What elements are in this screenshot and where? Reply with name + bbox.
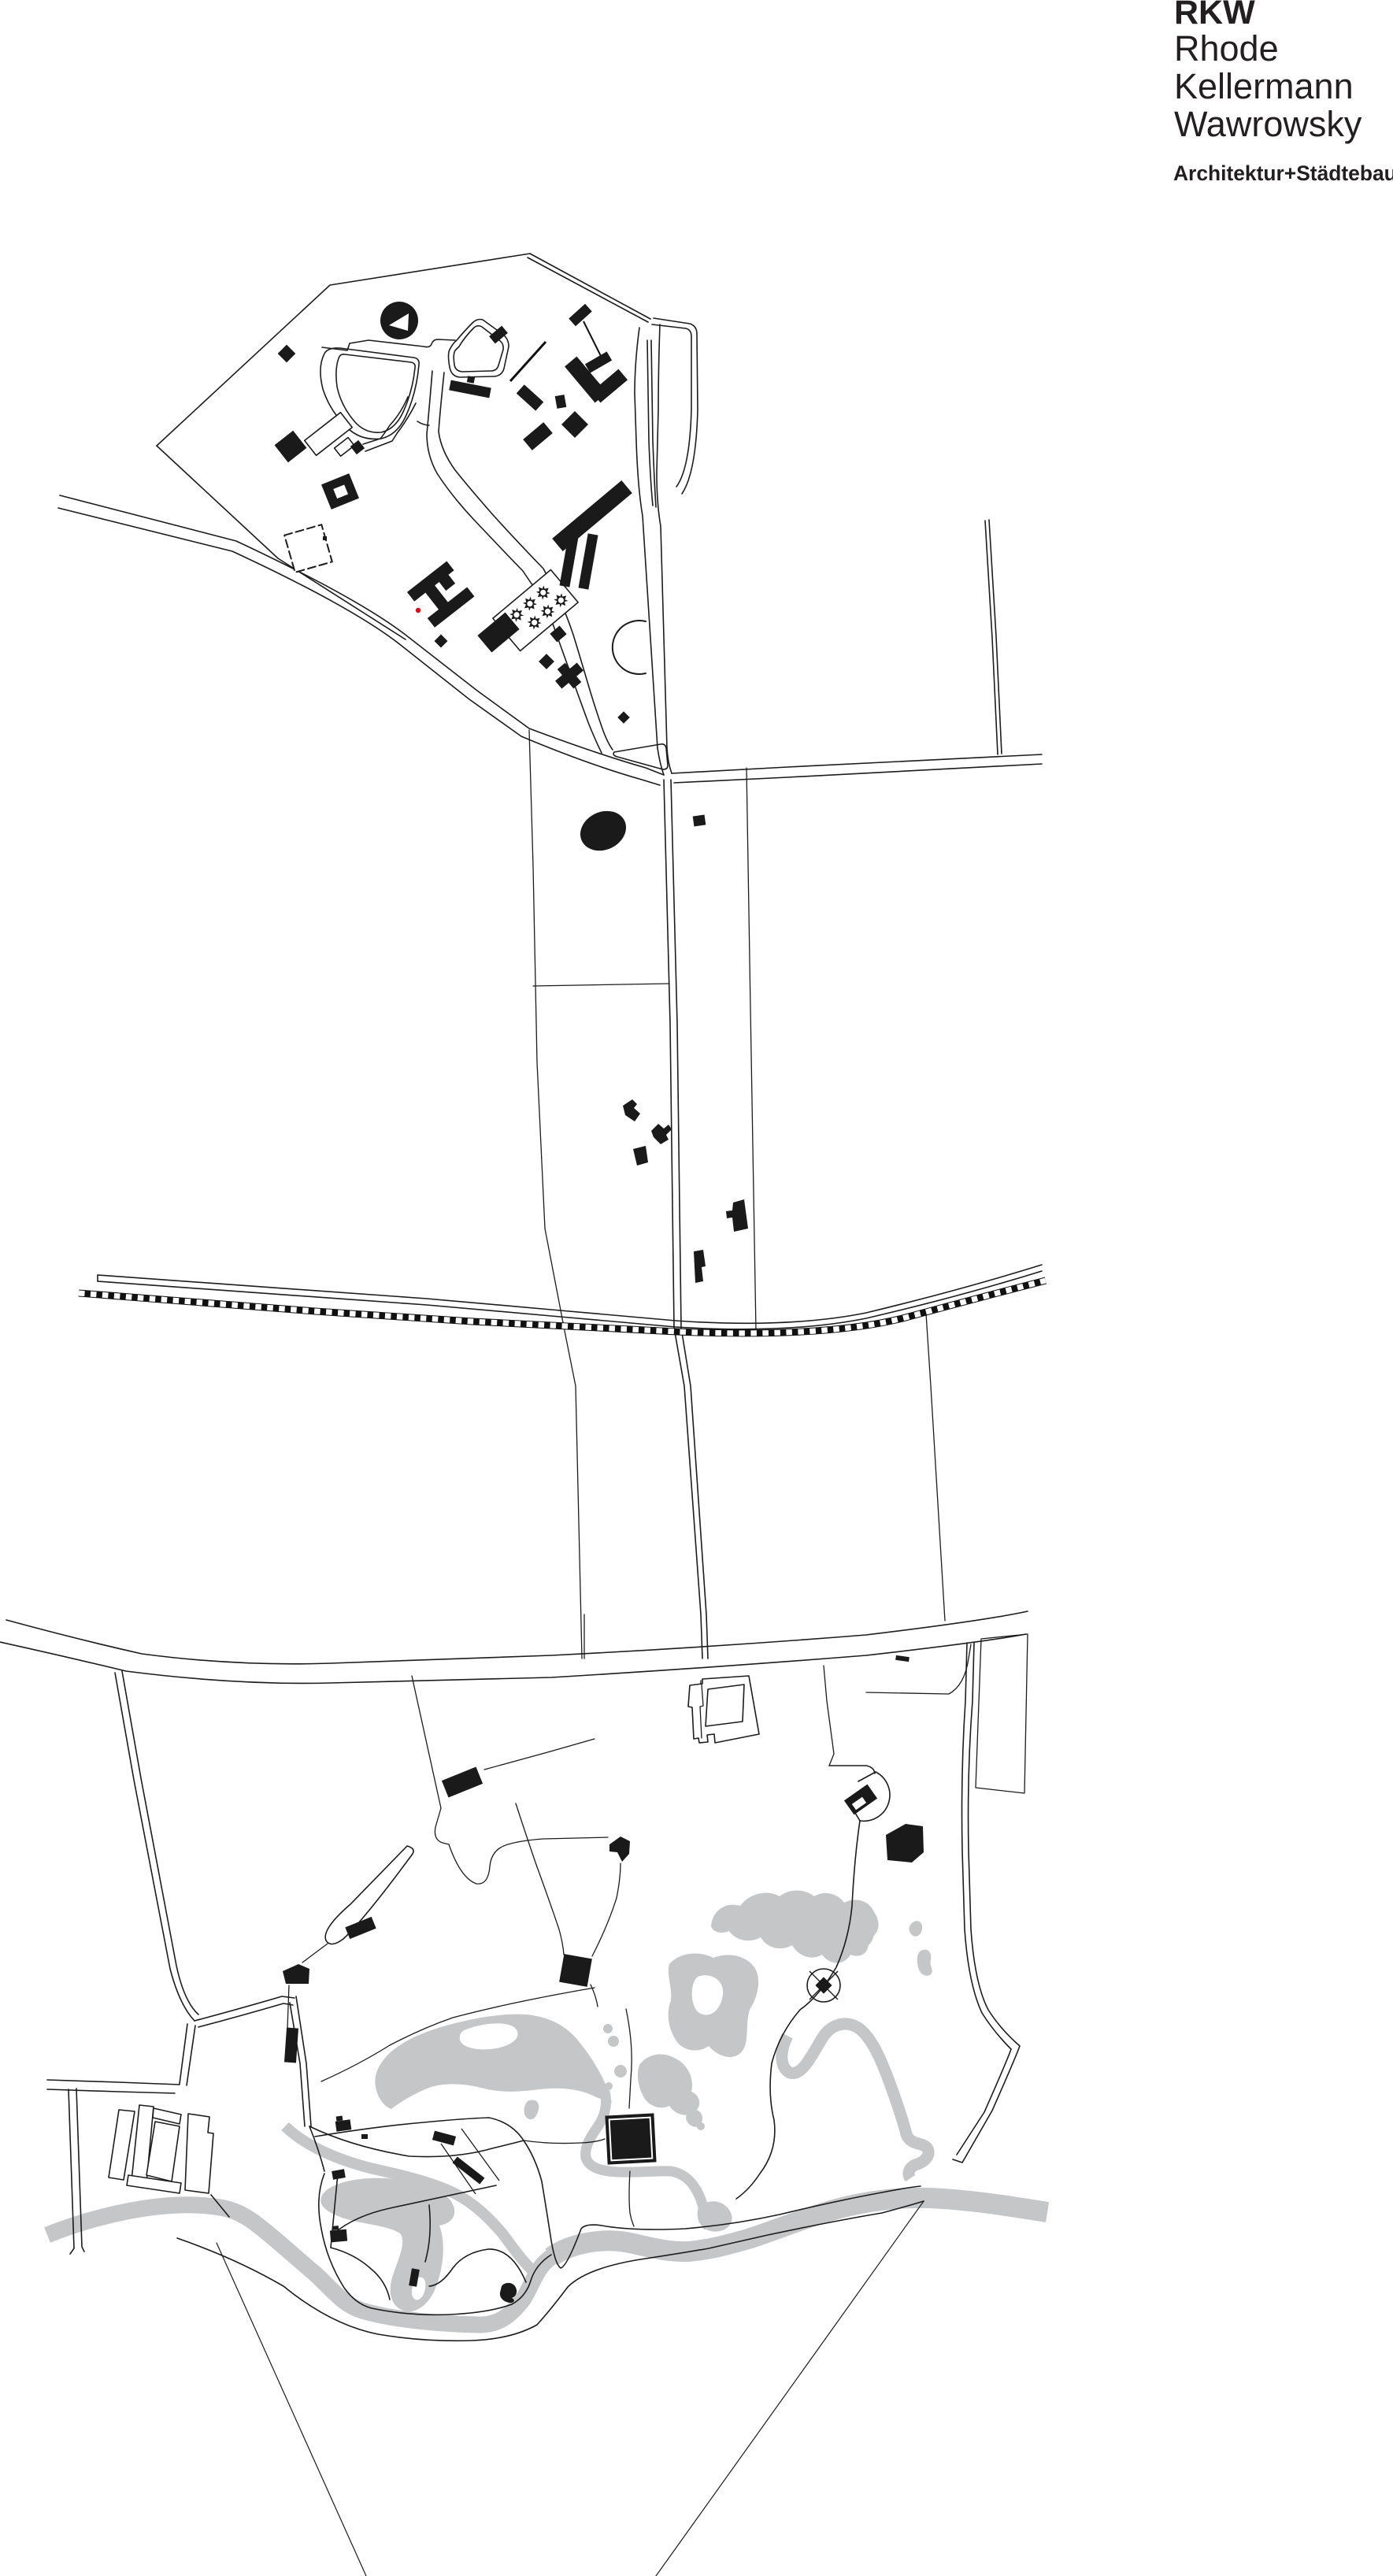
svg-text:Architektur+Städtebau: Architektur+Städtebau [1173,161,1393,185]
svg-text:Kellermann: Kellermann [1174,66,1354,106]
svg-text:RKW: RKW [1174,0,1255,32]
svg-text:Rhode: Rhode [1174,28,1279,69]
svg-text:Wawrowsky: Wawrowsky [1174,104,1362,144]
